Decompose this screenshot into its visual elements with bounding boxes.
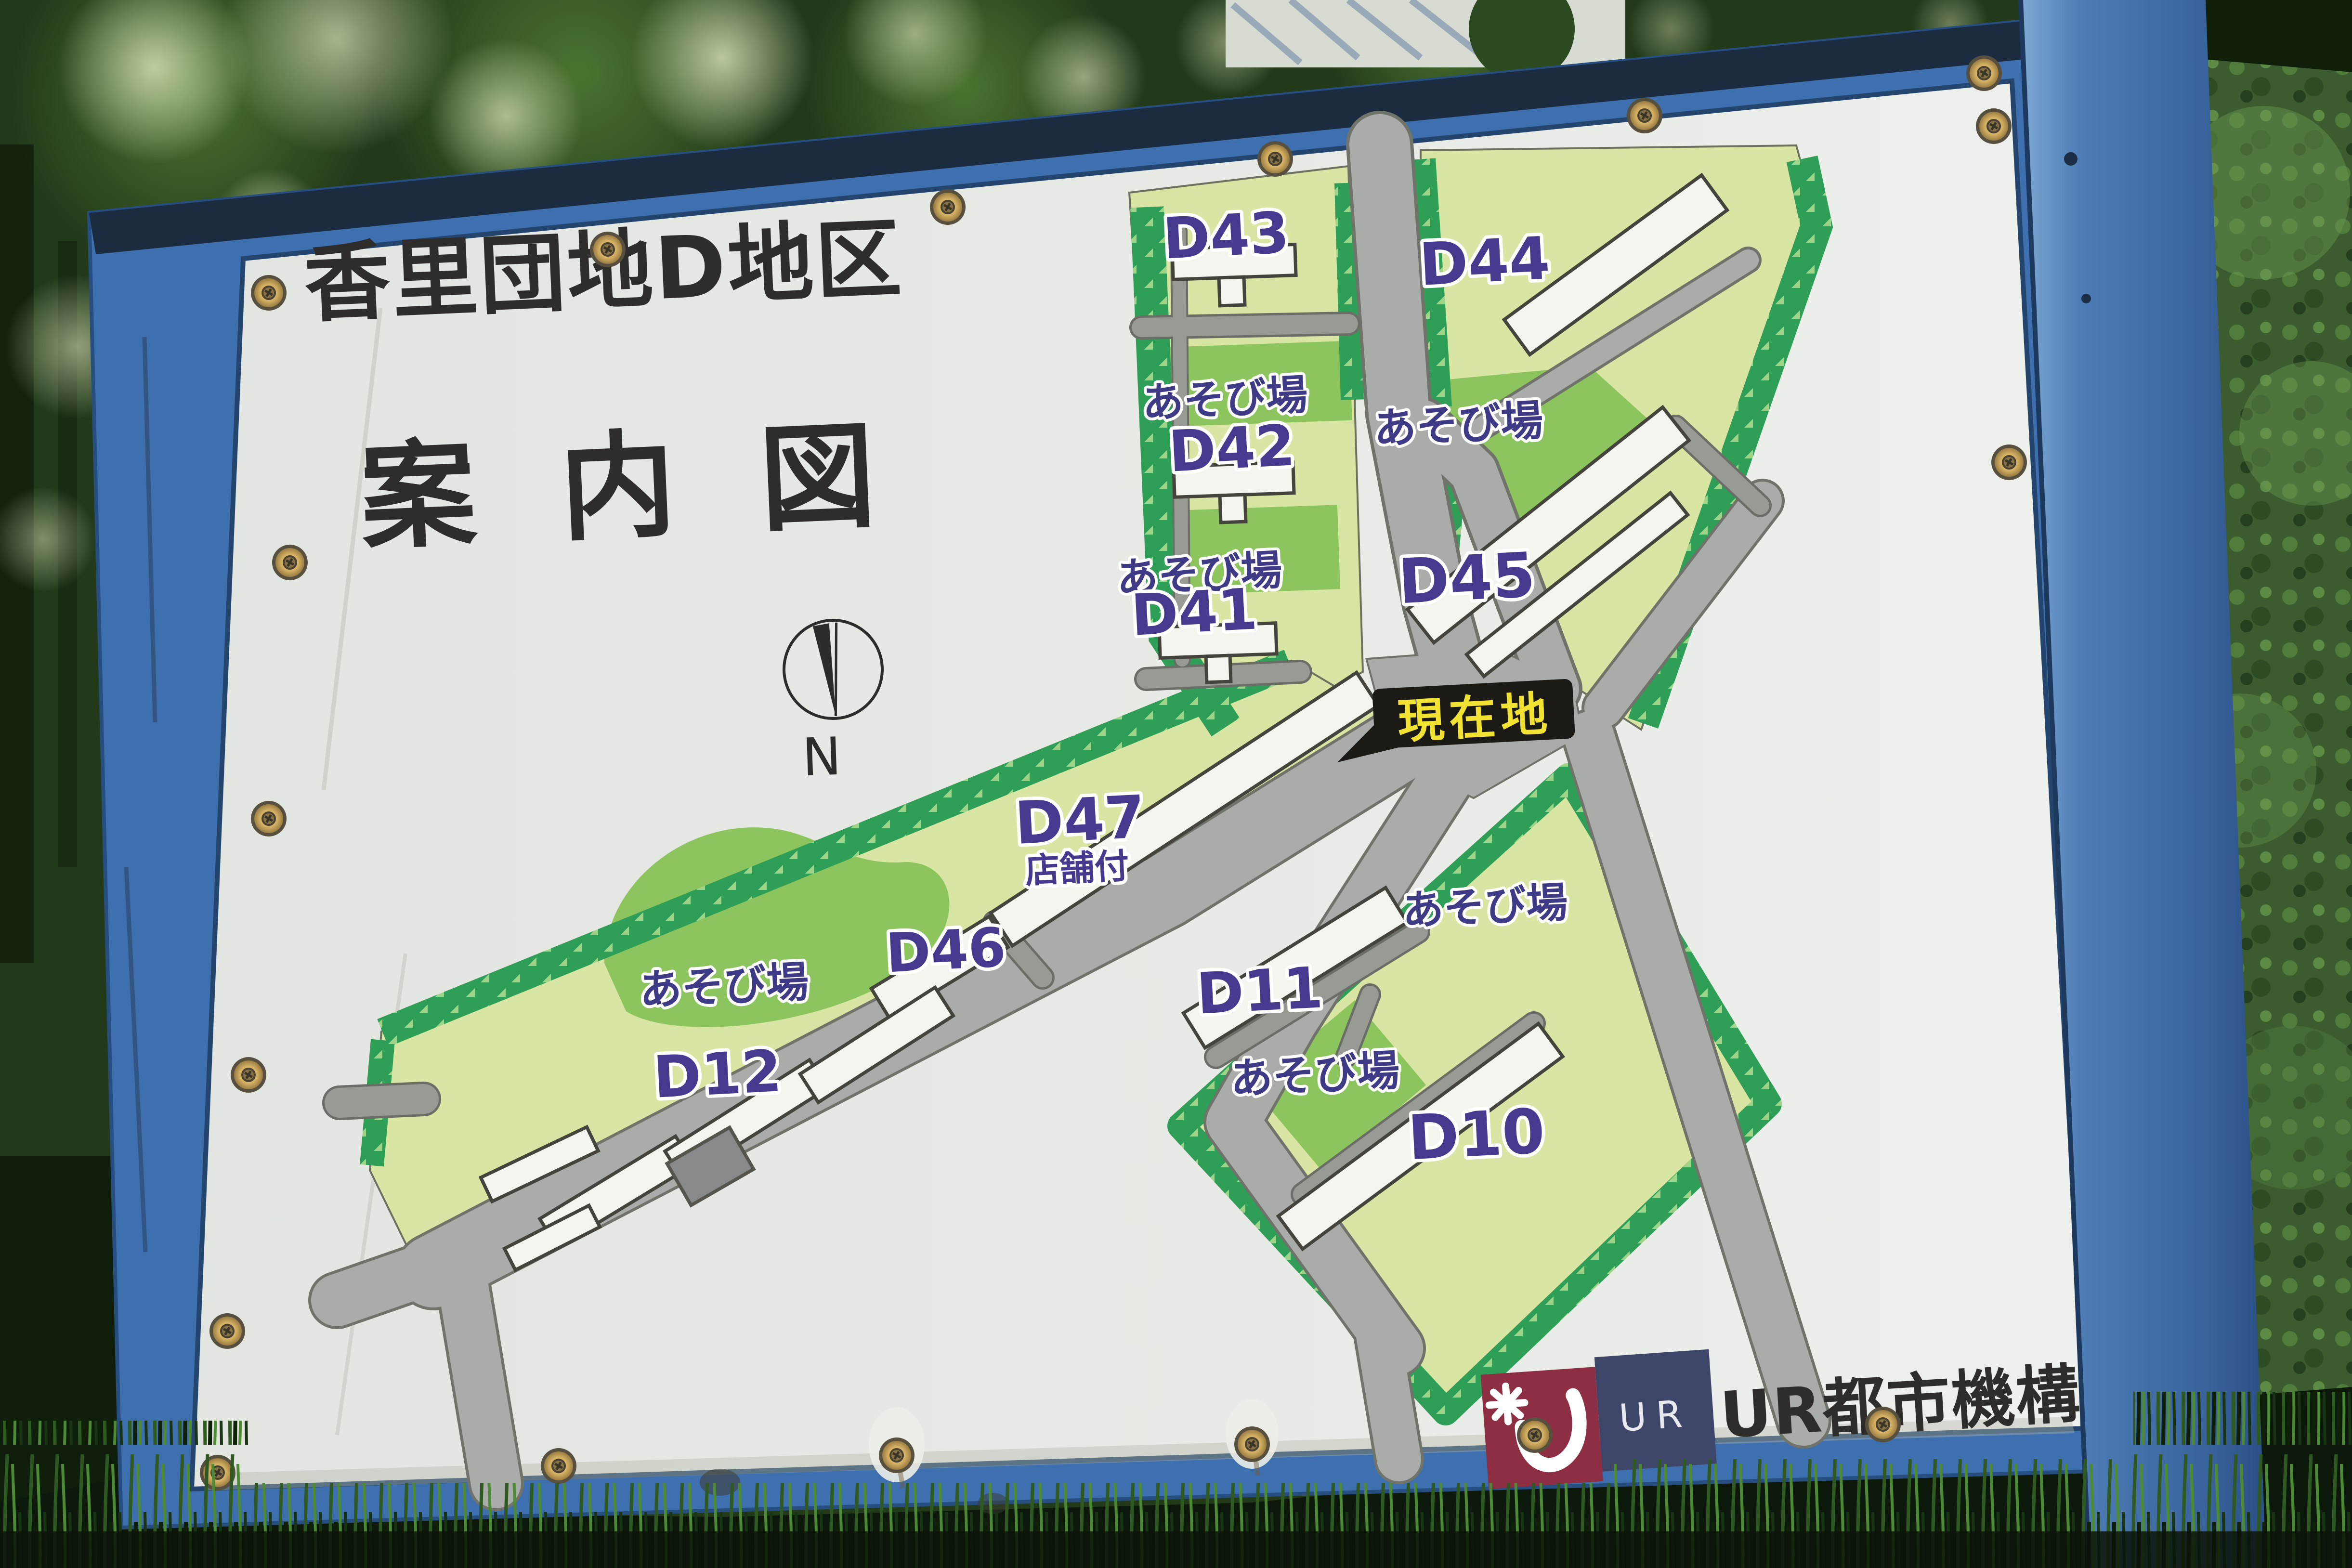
road-west-stub	[337, 1262, 448, 1300]
screw	[209, 1313, 245, 1349]
label-d11: D11	[1195, 954, 1324, 1027]
current-location-label: 現在地	[1396, 687, 1553, 749]
building-d41-annex	[1206, 655, 1231, 682]
label-d42: D42	[1167, 412, 1296, 485]
screw	[251, 275, 287, 311]
screw	[1517, 1417, 1553, 1453]
screw	[879, 1437, 915, 1473]
screw	[251, 801, 287, 836]
compass-label: N	[801, 727, 842, 788]
ur-logo-initials: UR	[1618, 1392, 1693, 1440]
label-playground-6: あそび場	[1229, 1045, 1401, 1104]
screw	[231, 1057, 266, 1093]
label-d44: D44	[1418, 224, 1552, 299]
label-d12: D12	[652, 1038, 784, 1111]
label-d43: D43	[1161, 199, 1291, 272]
screw	[1976, 108, 2012, 144]
label-d47-annotation: 店舗付	[1024, 845, 1130, 891]
post-chip	[2064, 152, 2078, 166]
label-playground-2: あそび場	[1372, 395, 1544, 454]
screw	[272, 545, 308, 580]
sign-board: 香里団地D地区 案内図 N	[89, 19, 2144, 1528]
screw	[590, 232, 626, 267]
label-d41: D41	[1129, 575, 1259, 649]
label-d10: D10	[1406, 1096, 1547, 1175]
building-d42-annex	[1220, 495, 1246, 523]
screw	[1865, 1407, 1901, 1442]
road-south-stub	[462, 1281, 496, 1483]
label-d45: D45	[1397, 539, 1537, 618]
screw	[1257, 141, 1293, 177]
screw	[541, 1448, 576, 1484]
screw	[1966, 55, 2002, 91]
screw	[930, 189, 966, 225]
screw	[1234, 1426, 1270, 1462]
screw	[1991, 444, 2027, 480]
road-d10-stub	[1377, 1329, 1399, 1459]
building-d43-annex	[1219, 277, 1245, 306]
label-playground-4: あそび場	[638, 957, 810, 1015]
ur-logo-asterisk-icon	[1488, 1385, 1526, 1423]
label-playground-5: あそび場	[1401, 878, 1569, 935]
post-chip	[2081, 294, 2091, 303]
photo-of-map-sign: 香里団地D地区 案内図 N	[0, 0, 2352, 1568]
screw	[1627, 98, 1662, 133]
label-d46: D46	[884, 916, 1007, 985]
sign-title-line2: 案内図	[357, 405, 962, 566]
